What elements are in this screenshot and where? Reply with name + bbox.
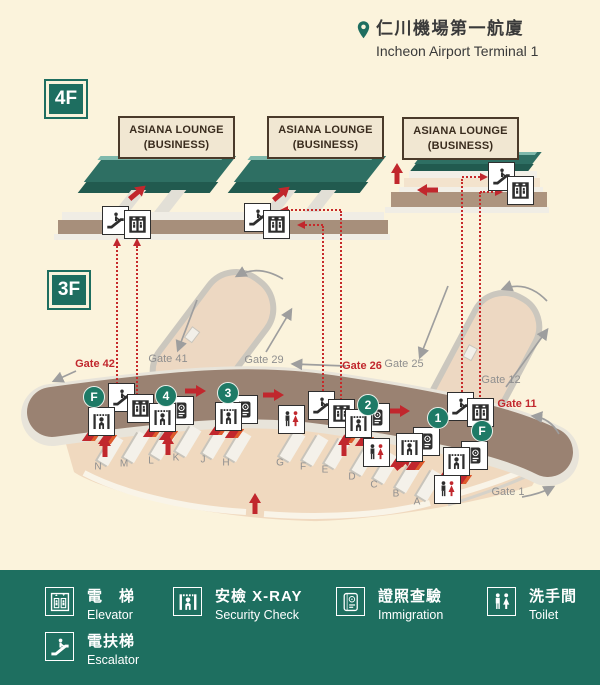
security-icon [173, 587, 202, 616]
legend-label-en: Escalator [87, 653, 139, 667]
legend-label-en: Toilet [529, 608, 577, 622]
gate-label: Gate 11 [497, 398, 536, 410]
route-badge-f: F [471, 420, 493, 442]
gate-label: Gate 12 [481, 374, 520, 386]
checkin-row-letter: G [276, 458, 284, 469]
legend-bar: 電 梯Elevator電扶梯Escalator安檢 X-RAYSecurity … [0, 570, 600, 685]
legend-label-zh: 洗手間 [529, 585, 577, 606]
checkin-row-letter: B [393, 489, 400, 500]
toilet-icon [434, 475, 461, 504]
route-arrowhead [113, 238, 121, 246]
route-dotted-line [283, 209, 341, 211]
route-dotted-line [116, 246, 118, 392]
checkin-row-letter: H [222, 458, 229, 469]
legend-label-en: Elevator [87, 608, 135, 622]
escalator-icon [45, 632, 74, 661]
route-badge-4: 4 [155, 385, 177, 407]
route-badge-3: 3 [217, 382, 239, 404]
legend-label-zh: 電扶梯 [87, 630, 139, 651]
route-arrowhead [297, 221, 305, 229]
flow-arrow-icon [416, 183, 438, 197]
legend-item-toilet: 洗手間Toilet [487, 587, 577, 622]
gate-label: Gate 1 [491, 486, 524, 498]
security-icon [88, 407, 115, 436]
page-title: 仁川機場第一航廈 [376, 14, 538, 39]
route-arrowhead [480, 173, 488, 181]
route-dotted-line [479, 192, 481, 404]
flow-arrow-icon [390, 162, 404, 184]
gate-label: Gate 42 [75, 358, 115, 370]
floor-label-3f: 3F [52, 275, 86, 305]
toilet-icon [278, 405, 305, 434]
route-dotted-line [340, 211, 342, 404]
page-subtitle: Incheon Airport Terminal 1 [376, 43, 538, 59]
asiana-lounge-label-2: ASIANA LOUNGE(BUSINESS) [267, 116, 384, 159]
checkin-row-letter: A [414, 497, 421, 508]
legend-item-elevator: 電 梯Elevator [45, 587, 135, 622]
security-icon [443, 447, 470, 476]
incheon-terminal-map: 仁川機場第一航廈 Incheon Airport Terminal 1 4F 3… [0, 0, 600, 685]
checkin-row-letter: C [370, 480, 377, 491]
legend-label-zh: 證照查驗 [378, 585, 443, 606]
checkin-row-letter: J [201, 455, 206, 466]
location-pin-icon [356, 20, 371, 40]
checkin-row-letter: N [94, 462, 101, 473]
gate-label: Gate 26 [342, 360, 382, 372]
asiana-lounge-label-1: ASIANA LOUNGE(BUSINESS) [118, 116, 235, 159]
checkin-row-letter: F [300, 462, 306, 473]
lounge-platform-3 [385, 150, 565, 280]
route-dotted-line [322, 226, 324, 398]
checkin-row-letter: D [348, 472, 355, 483]
route-dotted-line [461, 179, 463, 399]
floor-badge-3f: 3F [47, 270, 91, 310]
route-dotted-line [136, 246, 138, 399]
route-badge-1: 1 [427, 407, 449, 429]
flow-arrow-icon [389, 404, 411, 418]
gate-label: Gate 29 [244, 354, 283, 366]
floor-badge-4f: 4F [44, 79, 88, 119]
security-icon [215, 402, 242, 431]
security-icon [149, 403, 176, 432]
checkin-row-letter: K [173, 453, 180, 464]
floor-label-4f: 4F [49, 84, 83, 114]
elevator-icon [263, 210, 290, 239]
legend-label-zh: 安檢 X-RAY [215, 585, 302, 606]
route-badge-2: 2 [357, 394, 379, 416]
legend-item-escalator: 電扶梯Escalator [45, 632, 139, 667]
security-icon [396, 433, 423, 462]
flow-arrow-icon [263, 388, 285, 402]
elevator-icon [507, 176, 534, 205]
elevator-icon [124, 210, 151, 239]
elevator-icon [45, 587, 74, 616]
checkin-row-letter: E [322, 465, 329, 476]
legend-item-security: 安檢 X-RAYSecurity Check [173, 587, 302, 622]
flow-arrow-icon [248, 492, 262, 514]
flow-arrow-icon [98, 435, 112, 457]
legend-label-en: Security Check [215, 608, 302, 622]
toilet-icon [487, 587, 516, 616]
checkin-row-letter: M [120, 459, 128, 470]
route-badge-f: F [83, 386, 105, 408]
legend-label-en: Immigration [378, 608, 443, 622]
lounge-platform-2 [210, 148, 390, 278]
toilet-icon [363, 438, 390, 467]
checkin-row-letter: L [148, 456, 154, 467]
immigration-icon [336, 587, 365, 616]
legend-label-zh: 電 梯 [87, 585, 135, 606]
asiana-lounge-label-3: ASIANA LOUNGE(BUSINESS) [402, 117, 519, 160]
legend-item-immigration: 證照查驗Immigration [336, 587, 443, 622]
gate-label: Gate 25 [384, 358, 423, 370]
route-arrowhead [133, 238, 141, 246]
gate-label: Gate 41 [148, 353, 187, 365]
map-header: 仁川機場第一航廈 Incheon Airport Terminal 1 [356, 14, 538, 59]
